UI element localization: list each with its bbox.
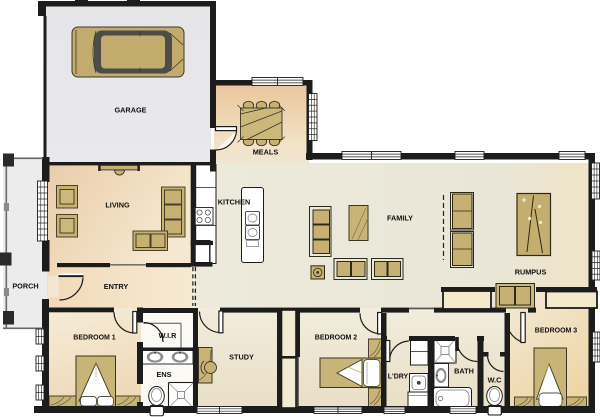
svg-text:L'DRY: L'DRY	[388, 374, 409, 381]
svg-text:W.I.R: W.I.R	[159, 331, 178, 340]
svg-text:GARAGE: GARAGE	[114, 106, 146, 115]
svg-text:ENTRY: ENTRY	[104, 282, 129, 291]
svg-text:BEDROOM 3: BEDROOM 3	[535, 328, 578, 335]
svg-text:BEDROOM 1: BEDROOM 1	[73, 335, 116, 342]
svg-text:BATH: BATH	[454, 367, 474, 376]
svg-text:LIVING: LIVING	[105, 201, 130, 210]
svg-text:MEALS: MEALS	[253, 148, 279, 157]
svg-text:BEDROOM 2: BEDROOM 2	[315, 335, 358, 342]
svg-text:PORCH: PORCH	[12, 282, 38, 291]
svg-text:KITCHEN: KITCHEN	[218, 198, 250, 207]
svg-text:FAMILY: FAMILY	[387, 214, 413, 223]
svg-text:STUDY: STUDY	[229, 353, 254, 362]
svg-text:ENS: ENS	[156, 370, 171, 379]
svg-text:W.C: W.C	[488, 376, 503, 385]
svg-text:RUMPUS: RUMPUS	[515, 268, 547, 277]
